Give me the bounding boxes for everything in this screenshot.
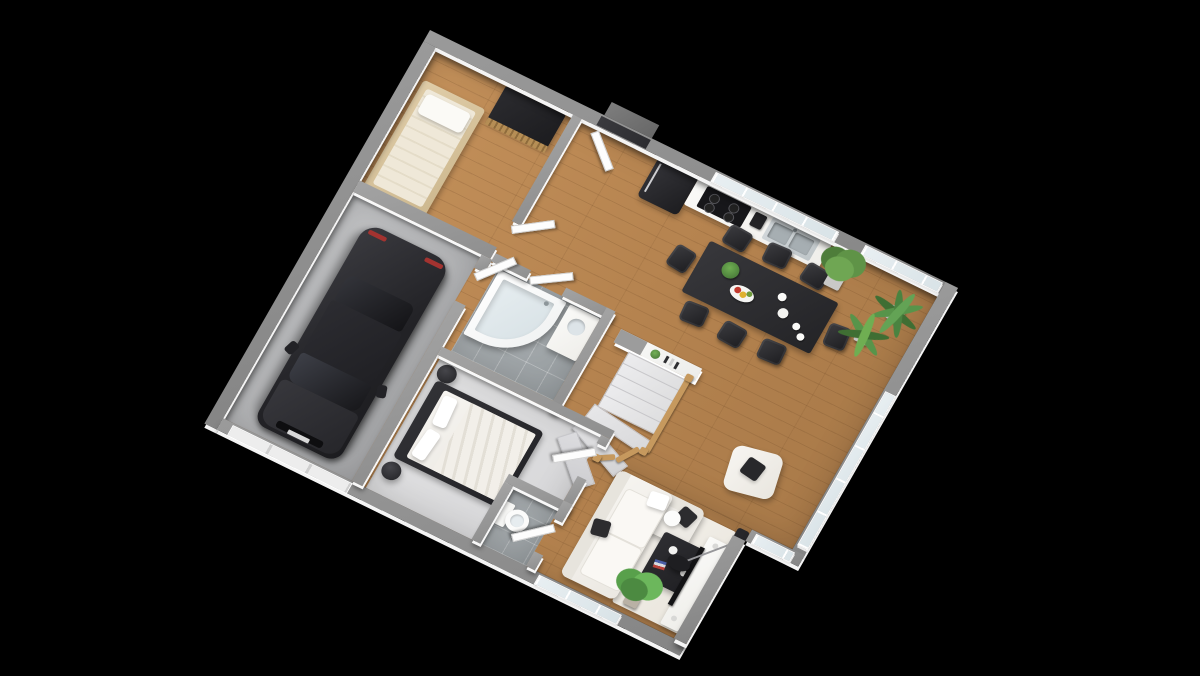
render-stage (0, 0, 1200, 676)
floor-plan (204, 30, 958, 676)
